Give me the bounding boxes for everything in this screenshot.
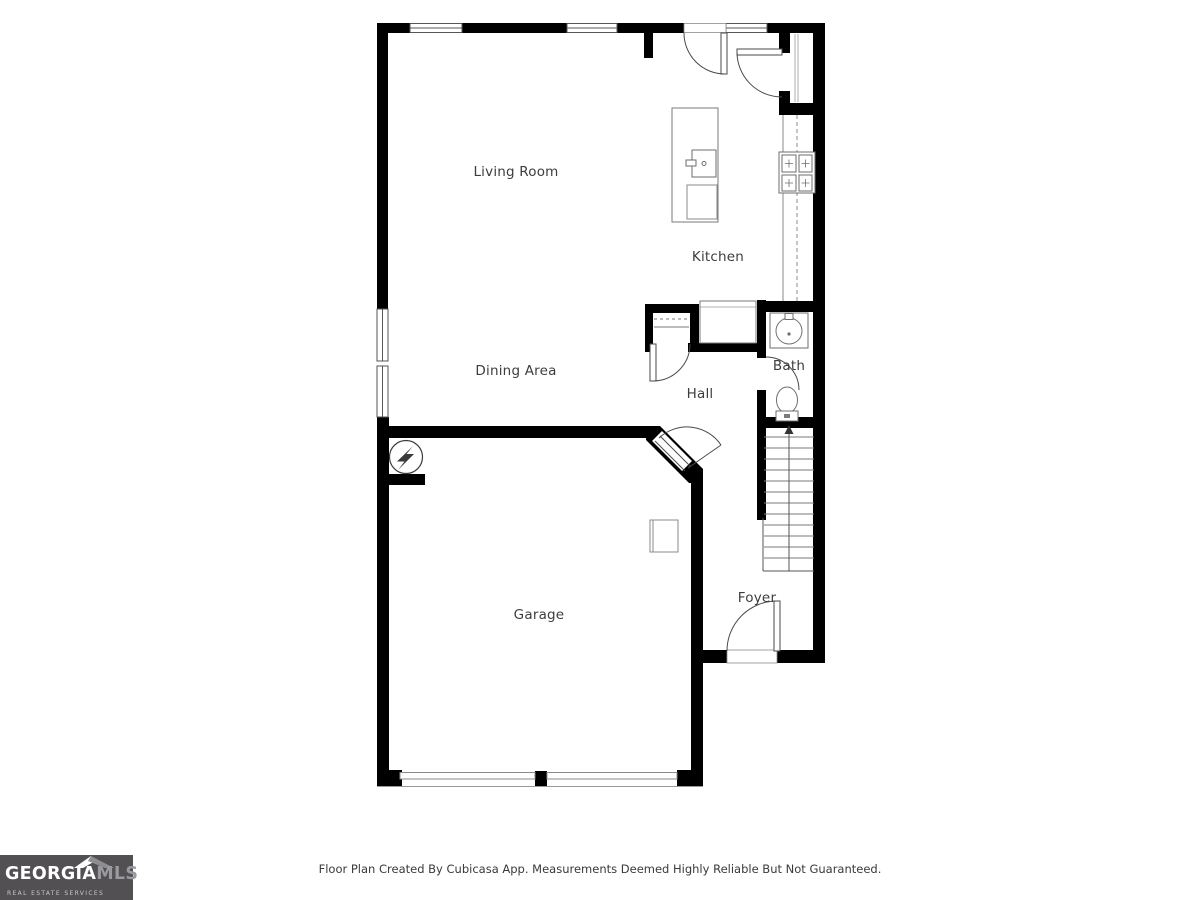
room-label-dining-area: Dining Area — [475, 363, 556, 379]
floorplan-svg — [0, 0, 1200, 900]
logo-tagline: REAL ESTATE SERVICES — [7, 890, 104, 897]
door-swing-icon — [655, 427, 721, 471]
dishwasher-icon — [687, 185, 717, 219]
kitchen-counter-icon — [783, 115, 797, 301]
logo-text-mls: MLS — [96, 864, 138, 884]
electrical-panel-icon — [390, 441, 423, 474]
kitchen-island-icon — [672, 108, 718, 222]
logo-wordmark: GEORGIAMLS — [5, 864, 138, 884]
wall-stub-panel-niche — [383, 474, 425, 485]
wall-stub-kitchen — [644, 33, 653, 58]
window-icon — [377, 366, 388, 417]
room-label-hall: Hall — [687, 386, 714, 402]
door-swing-icon — [650, 344, 690, 381]
georgia-mls-logo: GEORGIAMLS REAL ESTATE SERVICES — [0, 855, 133, 900]
interior-walls — [383, 33, 825, 520]
window-icon — [726, 24, 767, 33]
room-label-garage: Garage — [514, 607, 565, 623]
stairs-icon — [763, 425, 814, 571]
window-icon — [377, 309, 388, 361]
water-heater-icon — [650, 520, 678, 552]
front-door-icon — [727, 601, 780, 663]
pantry-shelves-icon — [795, 34, 798, 102]
door-swing-icon — [684, 24, 727, 75]
window-icon — [410, 24, 462, 33]
room-label-kitchen: Kitchen — [692, 249, 744, 265]
closet-shelves-icon — [654, 319, 689, 327]
room-label-foyer: Foyer — [738, 590, 776, 606]
floorplan-image: Living Room Kitchen Dining Area Hall Bat… — [0, 0, 1200, 900]
window-icon — [567, 24, 617, 33]
refrigerator-icon — [700, 301, 756, 343]
disclaimer-text: Floor Plan Created By Cubicasa App. Meas… — [0, 862, 1200, 876]
toilet-icon — [776, 387, 798, 421]
room-label-living-room: Living Room — [473, 164, 558, 180]
kitchen-fixtures — [672, 34, 815, 343]
door-swing-icon — [737, 49, 782, 97]
room-label-bath: Bath — [773, 358, 805, 374]
stove-icon — [779, 152, 815, 193]
bathroom-sink-icon — [770, 313, 808, 348]
logo-text-georgia: GEORGIA — [5, 864, 96, 884]
